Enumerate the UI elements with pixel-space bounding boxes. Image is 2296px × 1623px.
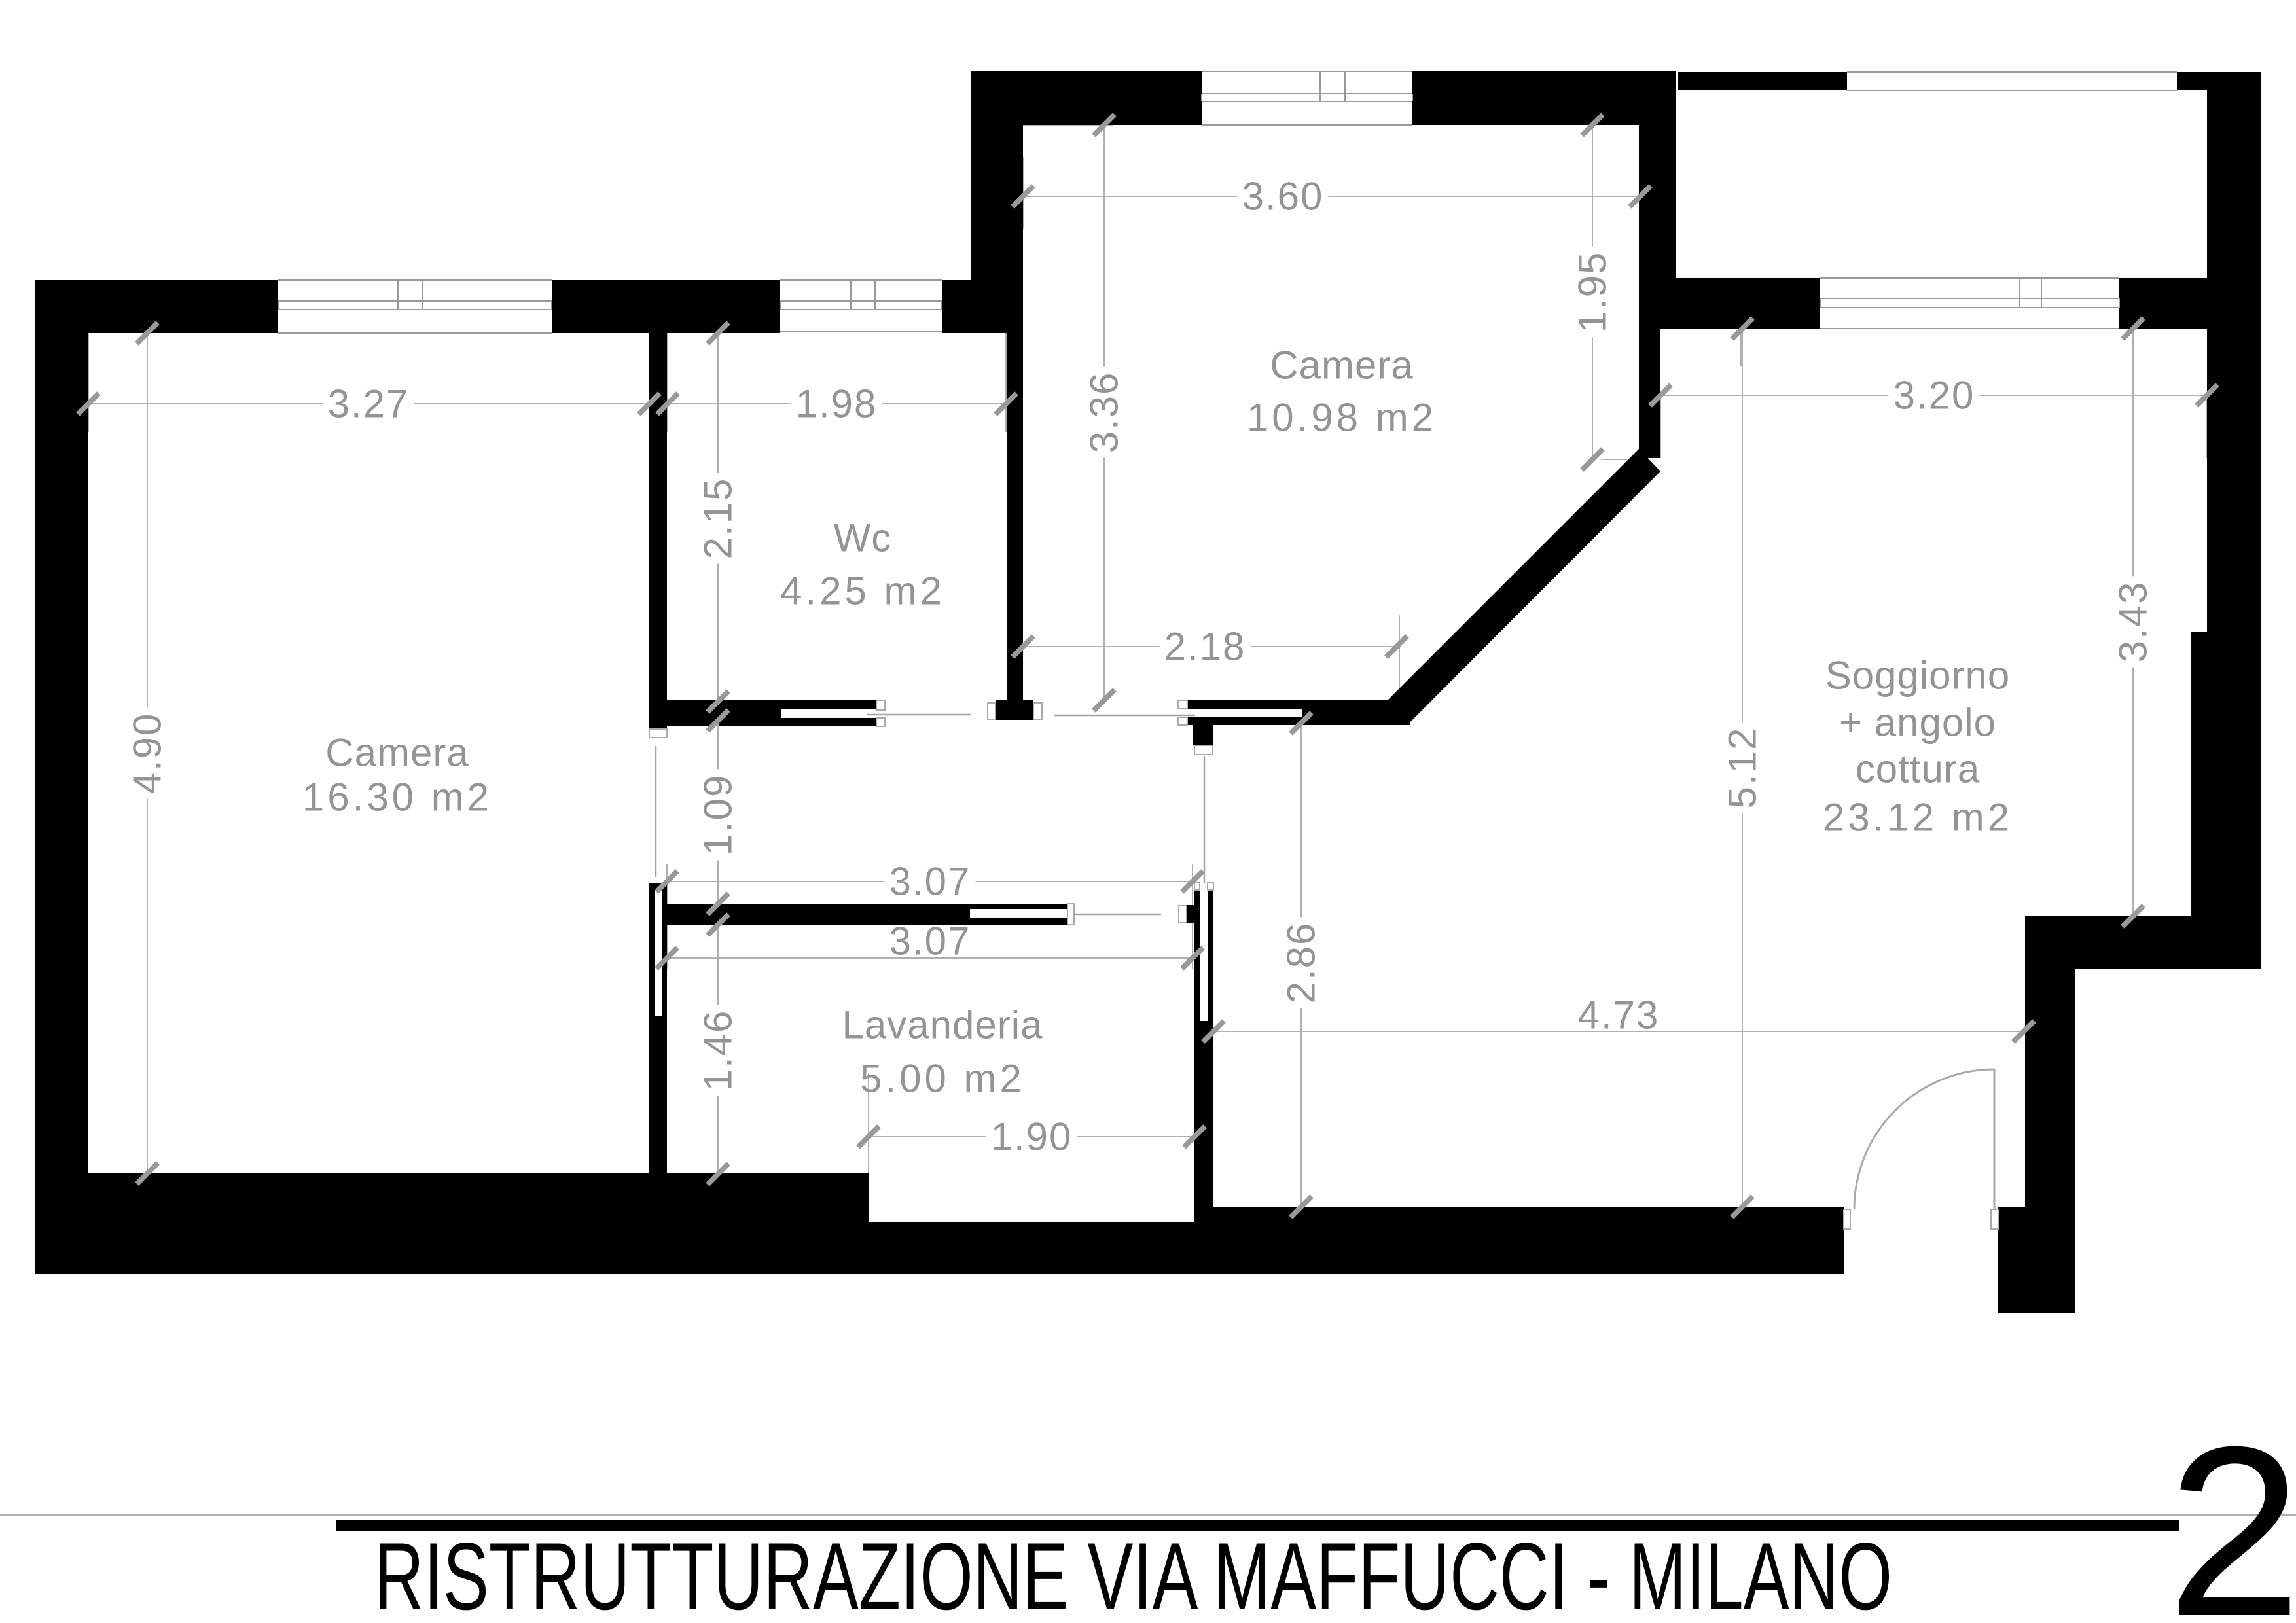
- svg-text:Camera: Camera: [1270, 344, 1413, 387]
- svg-text:3.43: 3.43: [2111, 581, 2155, 663]
- svg-text:1.95: 1.95: [1571, 251, 1615, 333]
- svg-text:1.90: 1.90: [991, 1115, 1073, 1159]
- svg-text:4.25 m2: 4.25 m2: [780, 569, 945, 613]
- svg-text:5.00 m2: 5.00 m2: [860, 1057, 1025, 1101]
- svg-text:2.86: 2.86: [1280, 922, 1323, 1004]
- svg-text:10.98 m2: 10.98 m2: [1247, 396, 1437, 440]
- svg-text:Camera: Camera: [325, 731, 469, 775]
- svg-text:4.90: 4.90: [126, 713, 170, 794]
- svg-text:RISTRUTTURAZIONE VIA MAFFUCCI: RISTRUTTURAZIONE VIA MAFFUCCI - MILANO: [374, 1523, 1892, 1623]
- svg-text:3.07: 3.07: [889, 919, 971, 963]
- svg-text:1.46: 1.46: [696, 1010, 740, 1092]
- svg-text:23.12 m2: 23.12 m2: [1823, 796, 2013, 840]
- svg-text:16.30 m2: 16.30 m2: [302, 776, 492, 819]
- svg-text:5.12: 5.12: [1721, 727, 1765, 809]
- svg-text:3.27: 3.27: [328, 382, 410, 426]
- svg-text:1.09: 1.09: [696, 774, 740, 856]
- svg-text:3.36: 3.36: [1083, 372, 1126, 454]
- svg-text:+ angolo: + angolo: [1839, 701, 1996, 745]
- svg-text:3.07: 3.07: [889, 860, 971, 904]
- svg-text:3.20: 3.20: [1893, 374, 1975, 418]
- svg-text:2: 2: [2167, 1397, 2296, 1623]
- svg-text:Lavanderia: Lavanderia: [842, 1003, 1043, 1047]
- svg-text:3.60: 3.60: [1242, 175, 1324, 219]
- svg-text:2.15: 2.15: [696, 478, 740, 560]
- svg-text:4.73: 4.73: [1578, 993, 1660, 1037]
- svg-text:2.18: 2.18: [1164, 625, 1246, 669]
- svg-text:Wc: Wc: [834, 516, 892, 560]
- svg-text:1.98: 1.98: [796, 382, 878, 426]
- svg-text:cottura: cottura: [1856, 747, 1980, 791]
- svg-text:Soggiorno: Soggiorno: [1825, 654, 2011, 698]
